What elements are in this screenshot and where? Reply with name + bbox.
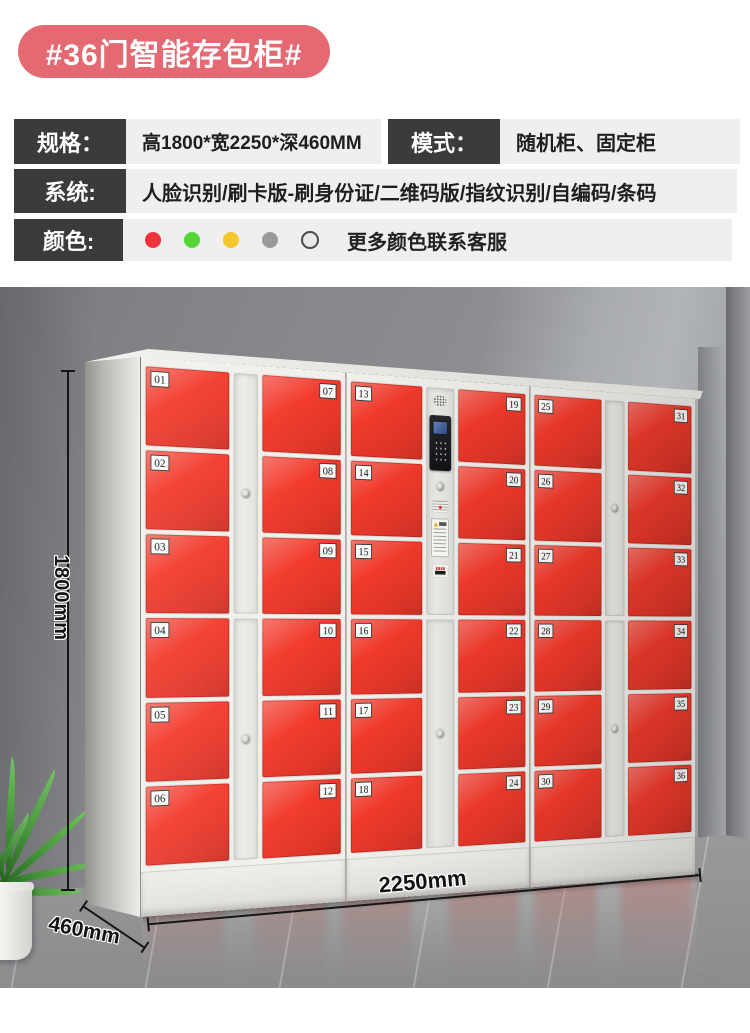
locker-unit-grid: 131415161718192021222324 bbox=[347, 373, 529, 859]
color-swatch bbox=[301, 231, 319, 249]
door-number-label: 19 bbox=[506, 396, 521, 411]
locker-door: 01 bbox=[146, 366, 229, 449]
color-swatches bbox=[145, 231, 319, 249]
door-number-label: 34 bbox=[674, 625, 688, 639]
door-number-label: 25 bbox=[538, 399, 553, 414]
locker-door: 19 bbox=[459, 389, 526, 465]
cam-lock bbox=[242, 735, 250, 744]
cam-lock bbox=[437, 729, 444, 737]
door-number-label: 21 bbox=[506, 548, 521, 563]
lock-strip-lower bbox=[605, 621, 625, 837]
door-number-label: 30 bbox=[538, 774, 553, 789]
product-title-badge: #36门智能存包柜# bbox=[18, 25, 330, 78]
door-number-label: 18 bbox=[355, 781, 372, 797]
locker-door: 06 bbox=[146, 783, 229, 865]
locker-door: 36 bbox=[628, 765, 691, 836]
color-swatch bbox=[145, 232, 161, 248]
locker-door: 30 bbox=[534, 768, 601, 841]
color-value-row: 更多颜色联系客服 bbox=[123, 219, 732, 261]
color-note: 更多颜色联系客服 bbox=[347, 226, 507, 255]
color-swatch bbox=[223, 232, 239, 248]
locker-door: 02 bbox=[146, 450, 229, 532]
locker-door: 21 bbox=[459, 543, 526, 616]
locker-door: 17 bbox=[351, 698, 422, 774]
locker-door: 08 bbox=[262, 456, 340, 535]
notice-text-lines bbox=[434, 528, 447, 554]
cam-lock bbox=[242, 489, 250, 498]
notice-card bbox=[431, 518, 449, 557]
door-number-label: 13 bbox=[355, 385, 372, 401]
wall-shadow bbox=[698, 347, 728, 907]
access-terminal bbox=[429, 415, 451, 471]
barcode-bar bbox=[435, 571, 445, 575]
door-number-label: 32 bbox=[674, 481, 688, 495]
locker-door: 04 bbox=[146, 619, 229, 698]
locker-door: 34 bbox=[628, 621, 691, 690]
locker-units: 0102030405060708091011121314151617181920… bbox=[141, 357, 695, 917]
system-label-chip: 系统: bbox=[14, 169, 126, 213]
door-number-label: 27 bbox=[538, 549, 553, 564]
door-number-label: 24 bbox=[506, 775, 521, 790]
door-number-label: 03 bbox=[150, 539, 169, 555]
door-number-label: 31 bbox=[674, 409, 688, 424]
locker-door: 07 bbox=[262, 375, 340, 456]
door-number-label: 10 bbox=[319, 623, 336, 638]
door-number-label: 05 bbox=[150, 706, 169, 722]
door-number-label: 02 bbox=[150, 455, 169, 472]
cabinet-side-panel bbox=[85, 356, 140, 917]
cam-lock bbox=[612, 505, 619, 513]
terminal-screen bbox=[433, 422, 447, 435]
locker-door: 16 bbox=[351, 620, 422, 695]
warning-triangle-icon bbox=[434, 521, 439, 526]
locker-door: 20 bbox=[459, 466, 526, 540]
lock-strip-upper bbox=[605, 400, 625, 617]
color-swatch bbox=[262, 232, 278, 248]
locker-door: 14 bbox=[351, 461, 422, 538]
locker-door: 03 bbox=[146, 534, 229, 614]
door-number-label: 17 bbox=[355, 702, 372, 717]
locker-door: 15 bbox=[351, 540, 422, 615]
speaker-grille-icon bbox=[434, 395, 447, 407]
locker-door: 12 bbox=[262, 779, 340, 859]
cam-lock bbox=[437, 482, 444, 491]
locker-door: 28 bbox=[534, 620, 601, 691]
door-number-label: 16 bbox=[355, 623, 372, 638]
locker-door: 32 bbox=[628, 475, 691, 546]
door-number-label: 08 bbox=[319, 463, 336, 479]
spec-label-chip: 规格： bbox=[14, 119, 126, 164]
locker-door: 13 bbox=[351, 381, 422, 459]
locker-door: 26 bbox=[534, 470, 601, 543]
door-number-label: 09 bbox=[319, 543, 336, 559]
cam-lock bbox=[612, 725, 619, 733]
notice-title-bar bbox=[440, 522, 447, 526]
mode-label-chip: 模式： bbox=[388, 119, 500, 164]
door-number-label: 07 bbox=[319, 383, 336, 399]
locker-unit-grid: 010203040506070809101112 bbox=[141, 357, 345, 872]
barcode-sticker bbox=[433, 564, 448, 577]
height-dimension-tick bbox=[61, 889, 75, 891]
height-dimension-tick bbox=[61, 370, 75, 372]
locker-door: 27 bbox=[534, 545, 601, 616]
door-number-label: 15 bbox=[355, 544, 372, 559]
locker-door: 24 bbox=[459, 771, 526, 846]
notice-header bbox=[434, 521, 447, 527]
locker-door: 09 bbox=[262, 538, 340, 615]
product-photo: 0102030405060708091011121314151617181920… bbox=[0, 287, 750, 988]
door-number-label: 29 bbox=[538, 699, 553, 714]
door-number-label: 20 bbox=[506, 472, 521, 487]
door-number-label: 28 bbox=[538, 624, 553, 638]
door-number-label: 01 bbox=[150, 371, 169, 388]
height-dimension-label: 1800mm bbox=[49, 555, 72, 641]
locker-door: 05 bbox=[146, 701, 229, 782]
locker-door: 25 bbox=[534, 395, 601, 469]
lock-strip-lower bbox=[234, 619, 258, 860]
product-page: #36门智能存包柜# 规格： 高1800*宽2250*深460MM 模式： 随机… bbox=[0, 0, 750, 1033]
door-number-label: 14 bbox=[355, 465, 372, 481]
plant-pot bbox=[0, 882, 32, 960]
locker-door: 33 bbox=[628, 548, 691, 617]
system-value: 人脸识别/刷卡版-刷身份证/二维码版/指纹识别/自编码/条码 bbox=[126, 169, 737, 213]
locker-door: 11 bbox=[262, 699, 340, 777]
door-number-label: 26 bbox=[538, 474, 553, 489]
door-number-label: 04 bbox=[150, 623, 169, 639]
door-number-label: 23 bbox=[506, 699, 521, 714]
terminal-keypad bbox=[434, 439, 447, 462]
locker-door: 23 bbox=[459, 696, 526, 770]
door-number-label: 36 bbox=[674, 768, 688, 782]
instruction-sticker bbox=[433, 501, 448, 513]
locker-door: 31 bbox=[628, 402, 691, 474]
locker-door: 29 bbox=[534, 694, 601, 766]
locker-door: 35 bbox=[628, 693, 691, 763]
locker-door: 10 bbox=[262, 619, 340, 696]
locker-unit: 131415161718192021222324 bbox=[347, 373, 529, 902]
locker-unit: 010203040506070809101112 bbox=[141, 357, 345, 917]
plant bbox=[0, 632, 96, 962]
lock-strip-lower bbox=[426, 620, 455, 848]
mode-value: 随机柜、固定柜 bbox=[500, 119, 740, 164]
color-swatch bbox=[184, 232, 200, 248]
locker-unit: 252627282930313233343536 bbox=[531, 387, 695, 888]
red-mark bbox=[436, 567, 445, 570]
door-number-label: 33 bbox=[674, 553, 688, 567]
locker-door: 22 bbox=[459, 620, 526, 692]
door-number-label: 06 bbox=[150, 790, 169, 807]
door-number-label: 11 bbox=[320, 703, 337, 719]
color-label-chip: 颜色: bbox=[14, 219, 123, 261]
locker-door: 18 bbox=[351, 775, 422, 853]
door-number-label: 35 bbox=[674, 696, 688, 710]
door-number-label: 22 bbox=[506, 624, 521, 638]
spec-value: 高1800*宽2250*深460MM bbox=[126, 119, 381, 164]
lock-strip-upper bbox=[234, 373, 258, 614]
door-number-label: 12 bbox=[319, 783, 336, 799]
control-panel bbox=[426, 387, 455, 616]
locker-unit-grid: 252627282930313233343536 bbox=[531, 387, 695, 848]
